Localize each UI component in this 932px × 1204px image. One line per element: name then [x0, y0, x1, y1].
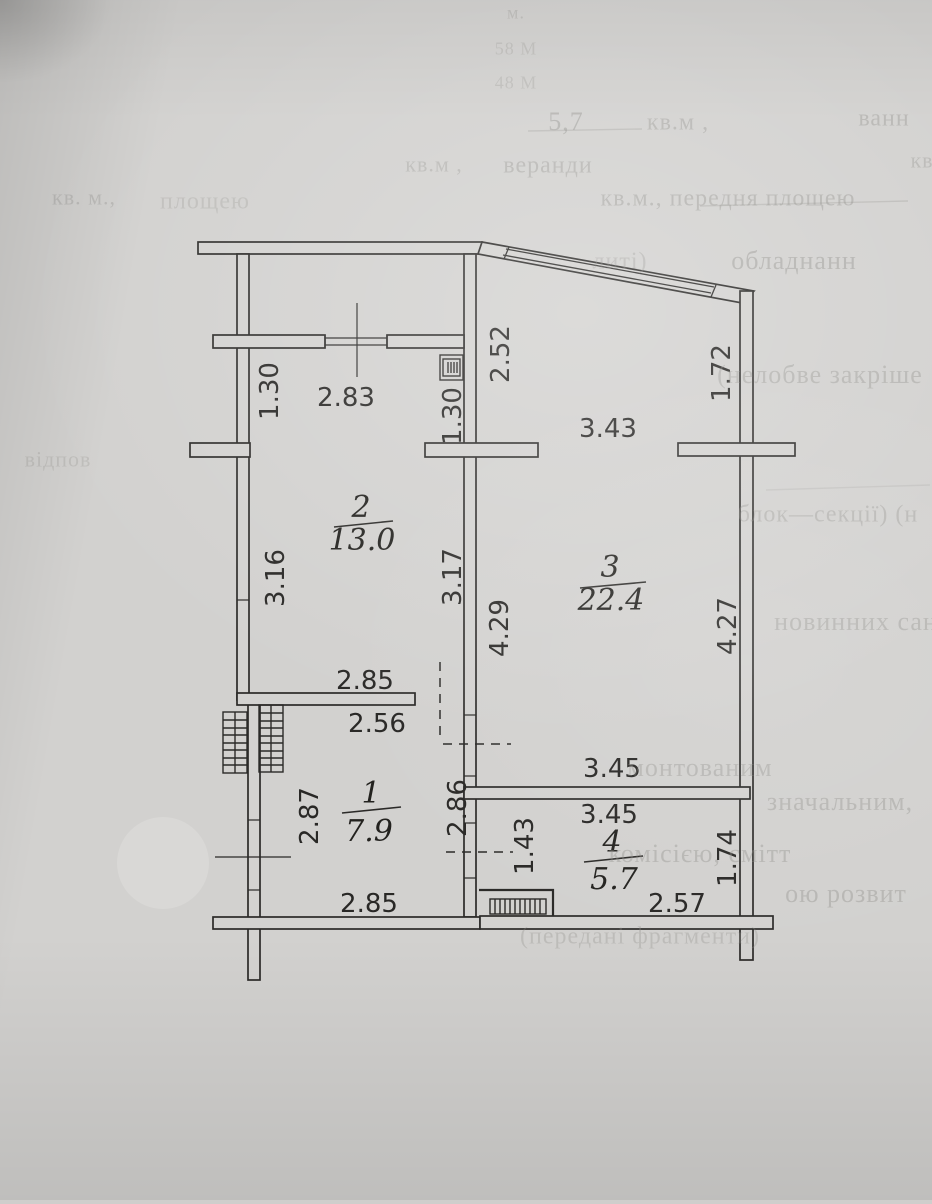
faint-text-fragment: комісією, смітт: [609, 839, 792, 868]
faint-text-fragment: відпов: [25, 447, 92, 472]
room-number: 2: [350, 490, 370, 525]
faint-text-fragment: 48 М: [495, 72, 538, 92]
faint-text-fragment: ванн: [858, 105, 909, 131]
dimension-label: 3.17: [438, 548, 468, 606]
faint-text-fragment: литі): [593, 248, 648, 274]
wall-room3-room4: [464, 787, 750, 799]
wall-left-lower: [248, 700, 260, 980]
dimension-label: 1.30: [438, 387, 468, 445]
faint-text-fragment: новинних сан: [774, 607, 932, 636]
dimension-label: 2.57: [648, 889, 706, 919]
dimension-label: 2.83: [317, 383, 375, 413]
faint-text-fragment: кв. м.,: [52, 185, 116, 210]
dimension-label: 2.52: [486, 325, 516, 383]
faint-text-fragment: монтованим: [627, 753, 772, 782]
faint-text-fragment: значальним,: [767, 787, 913, 816]
room-number: 3: [600, 550, 619, 585]
faint-text-fragment: 5,7: [548, 107, 584, 136]
vent-shaft-icon: [259, 705, 283, 772]
dimension-labels: 2.833.432.852.563.453.452.572.851.301.30…: [255, 325, 743, 919]
vent-shaft-icon: [223, 712, 247, 773]
faint-text-fragment: (нелобве закріше: [717, 360, 923, 389]
dimension-label: 3.43: [579, 414, 637, 444]
dimension-label: 4.29: [485, 599, 515, 657]
room-number: 1: [361, 776, 380, 811]
boiler-icon: [440, 355, 463, 380]
dimension-label: 2.85: [340, 889, 398, 919]
faint-bleedthrough-text: м.58 М48 М5,7кв.м ,ваннкв.м ,верандиквкв…: [25, 2, 932, 949]
dimension-label: 4.27: [713, 597, 743, 655]
faint-text-fragment: ою розвит: [785, 879, 907, 908]
faint-text-fragment: блок—секції) (н: [738, 501, 919, 527]
faint-text-fragment: площею: [160, 188, 250, 214]
dimension-label: 3.16: [261, 549, 291, 607]
dimension-label: 1.43: [510, 817, 540, 875]
dimension-label: 2.86: [443, 779, 473, 837]
dimension-label: 2.85: [336, 666, 394, 696]
wall-balcony-b: [387, 335, 464, 348]
wall-stub-left: [190, 443, 250, 457]
faint-text-fragment: веранди: [503, 152, 592, 178]
scanned-document-page: 2.833.432.852.563.453.452.572.851.301.30…: [0, 0, 932, 1200]
wall-balcony-a: [213, 335, 325, 348]
room-area: 22.4: [577, 583, 645, 618]
faint-text-fragment: кв.м ,: [405, 152, 463, 177]
room-area: 13.0: [329, 523, 396, 558]
dimension-label: 1.30: [255, 362, 285, 420]
balcony-window: [325, 335, 387, 348]
vent-block-icon: [490, 899, 546, 914]
floor-plan: 2.833.432.852.563.453.452.572.851.301.30…: [0, 0, 932, 1200]
faint-text-fragment: обладнанн: [731, 246, 857, 275]
wall-top: [198, 242, 482, 254]
faint-text-fragment: м.: [507, 2, 525, 22]
faint-text-fragment: 58 М: [495, 38, 538, 58]
faint-text-fragment: кв.м., передня площею: [601, 185, 856, 211]
dimension-label: 2.56: [348, 709, 406, 739]
wall-stub-right: [678, 443, 795, 456]
faint-text-fragment: кв.м ,: [647, 109, 709, 135]
room-area: 7.9: [345, 814, 393, 849]
sticker-circle: [117, 817, 209, 909]
faint-text-fragment: кв: [910, 148, 932, 173]
faint-text-fragment: (передані фрагменти): [520, 923, 760, 949]
wall-left-upper: [237, 254, 249, 700]
dimension-label: 2.87: [295, 787, 325, 845]
